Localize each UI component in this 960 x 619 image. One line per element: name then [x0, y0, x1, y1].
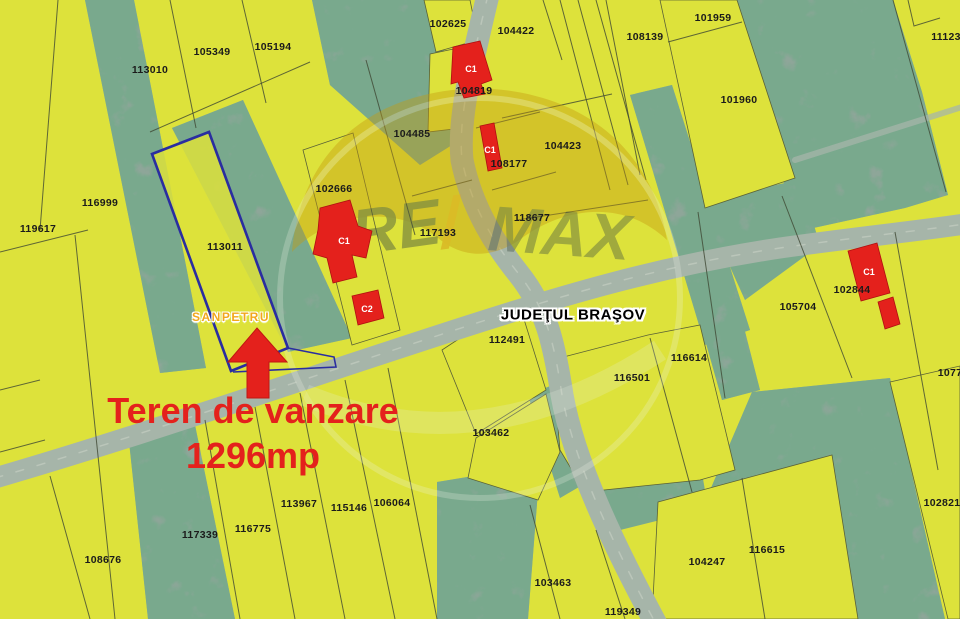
locality-label: SANPETRU: [192, 310, 270, 324]
watermark-max: MAX: [486, 192, 636, 274]
cadastral-map[interactable]: RE / MAX 1130101053491051941026251044221…: [0, 0, 960, 619]
map-canvas: RE / MAX: [0, 0, 960, 619]
listing-annotation: Teren de vanzare 1296mp: [107, 388, 398, 478]
listing-title: Teren de vanzare: [107, 388, 398, 433]
listing-area: 1296mp: [107, 433, 398, 478]
county-label: JUDEŢUL BRAŞOV: [501, 307, 645, 324]
